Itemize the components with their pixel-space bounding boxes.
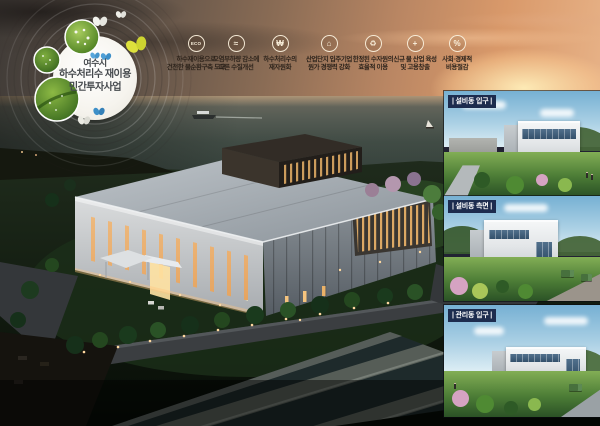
bush [472, 283, 488, 299]
glass-band [510, 354, 560, 362]
truck [581, 274, 592, 281]
bush [476, 395, 494, 413]
bush [518, 284, 533, 299]
cloud [474, 327, 504, 335]
panel-equipment-side: | 설비동 측면 | [444, 196, 600, 301]
person [591, 174, 593, 180]
flower-bush [536, 174, 548, 186]
person [586, 172, 588, 178]
bush [496, 280, 509, 293]
project-title-line2: 하수처리수 재이용 [45, 69, 145, 82]
bush [558, 178, 572, 192]
project-title: 여수시 하수처리수 재이용 민간투자사업 [45, 58, 145, 94]
truck [561, 270, 574, 277]
truck [569, 384, 582, 391]
flower-bush [450, 277, 468, 295]
panel-label: | 설비동 입구 | [448, 95, 496, 108]
panel-admin-entrance: | 관리동 입구 | [444, 305, 600, 417]
glass-band [522, 129, 576, 139]
panel-label: | 관리동 입구 | [448, 309, 496, 322]
flower-bush [452, 390, 469, 407]
bush [528, 398, 541, 411]
panel-label: | 설비동 측면 | [448, 200, 496, 213]
project-title-line1: 여수시 [45, 58, 145, 69]
bush [504, 401, 518, 415]
poster-canvas: 여수시 하수처리수 재이용 민간투자사업 ECO 하수재이용으로 건전한 물순환… [0, 0, 600, 426]
panel-equipment-entrance: | 설비동 입구 | [444, 91, 600, 196]
cloud [544, 317, 588, 325]
bush [474, 172, 490, 188]
person [454, 383, 456, 389]
project-title-line3: 민간투자사업 [45, 82, 145, 95]
cloud [504, 204, 548, 212]
glass-band [489, 230, 529, 239]
cloud [540, 109, 574, 117]
bush [506, 176, 524, 194]
